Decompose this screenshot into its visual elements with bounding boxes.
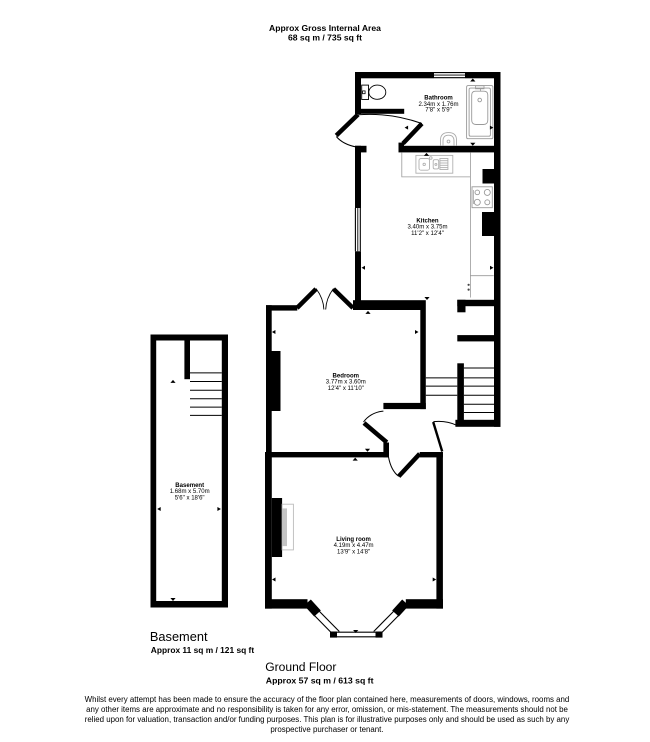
svg-text:Approx 57 sq m / 613 sq ft: Approx 57 sq m / 613 sq ft: [266, 676, 374, 686]
svg-text:7'8" x 5'9": 7'8" x 5'9": [425, 107, 451, 113]
svg-text:3.77m x 3.60m: 3.77m x 3.60m: [326, 380, 366, 386]
svg-text:Ground Floor: Ground Floor: [265, 660, 336, 674]
svg-text:4.19m x 4.47m: 4.19m x 4.47m: [334, 543, 374, 549]
svg-text:Living room: Living room: [336, 537, 371, 543]
svg-text:Approx 11 sq m / 121 sq ft: Approx 11 sq m / 121 sq ft: [151, 645, 255, 655]
svg-text:any other items are approximat: any other items are approximate and no r…: [86, 705, 568, 714]
svg-text:relied upon for valuation, tra: relied upon for valuation, transaction a…: [85, 715, 570, 724]
svg-text:68 sq m / 735 sq ft: 68 sq m / 735 sq ft: [288, 33, 362, 43]
svg-text:Basement: Basement: [150, 629, 208, 644]
svg-text:1.68m x 5.70m: 1.68m x 5.70m: [170, 489, 210, 495]
svg-text:Approx Gross Internal Area: Approx Gross Internal Area: [269, 23, 381, 33]
svg-text:prospective purchaser or tenan: prospective purchaser or tenant.: [270, 725, 383, 734]
svg-text:Bathroom: Bathroom: [424, 96, 453, 102]
svg-text:3.40m x 3.75m: 3.40m x 3.75m: [408, 225, 448, 231]
svg-text:Whilst every attempt has been: Whilst every attempt has been made to en…: [85, 695, 570, 704]
svg-text:5'6" x 18'6": 5'6" x 18'6": [175, 496, 205, 502]
svg-text:Basement: Basement: [175, 483, 204, 489]
svg-text:Bedroom: Bedroom: [333, 373, 360, 379]
svg-text:Kitchen: Kitchen: [416, 218, 438, 224]
svg-text:11'2" x 12'4": 11'2" x 12'4": [411, 231, 444, 237]
svg-text:13'9" x 14'8": 13'9" x 14'8": [337, 549, 370, 555]
svg-text:12'4" x 11'10": 12'4" x 11'10": [328, 386, 364, 392]
